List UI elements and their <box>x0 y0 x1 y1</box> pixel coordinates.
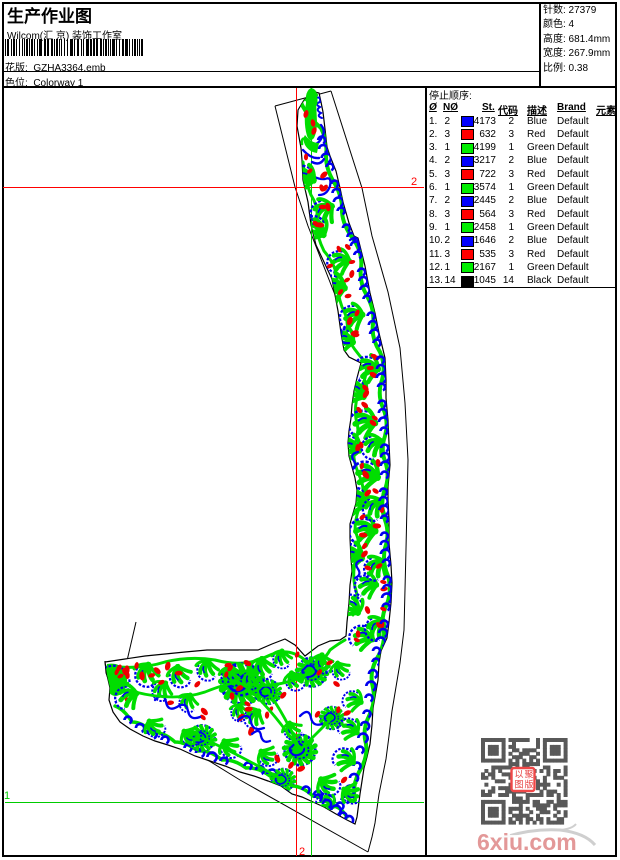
svg-text:图版: 图版 <box>515 779 535 790</box>
svg-text:2: 2 <box>411 176 417 188</box>
svg-text:6xiu.com: 6xiu.com <box>477 829 577 855</box>
svg-text:2: 2 <box>299 846 305 858</box>
svg-text:1: 1 <box>4 790 10 802</box>
svg-text:以聚: 以聚 <box>515 770 535 780</box>
